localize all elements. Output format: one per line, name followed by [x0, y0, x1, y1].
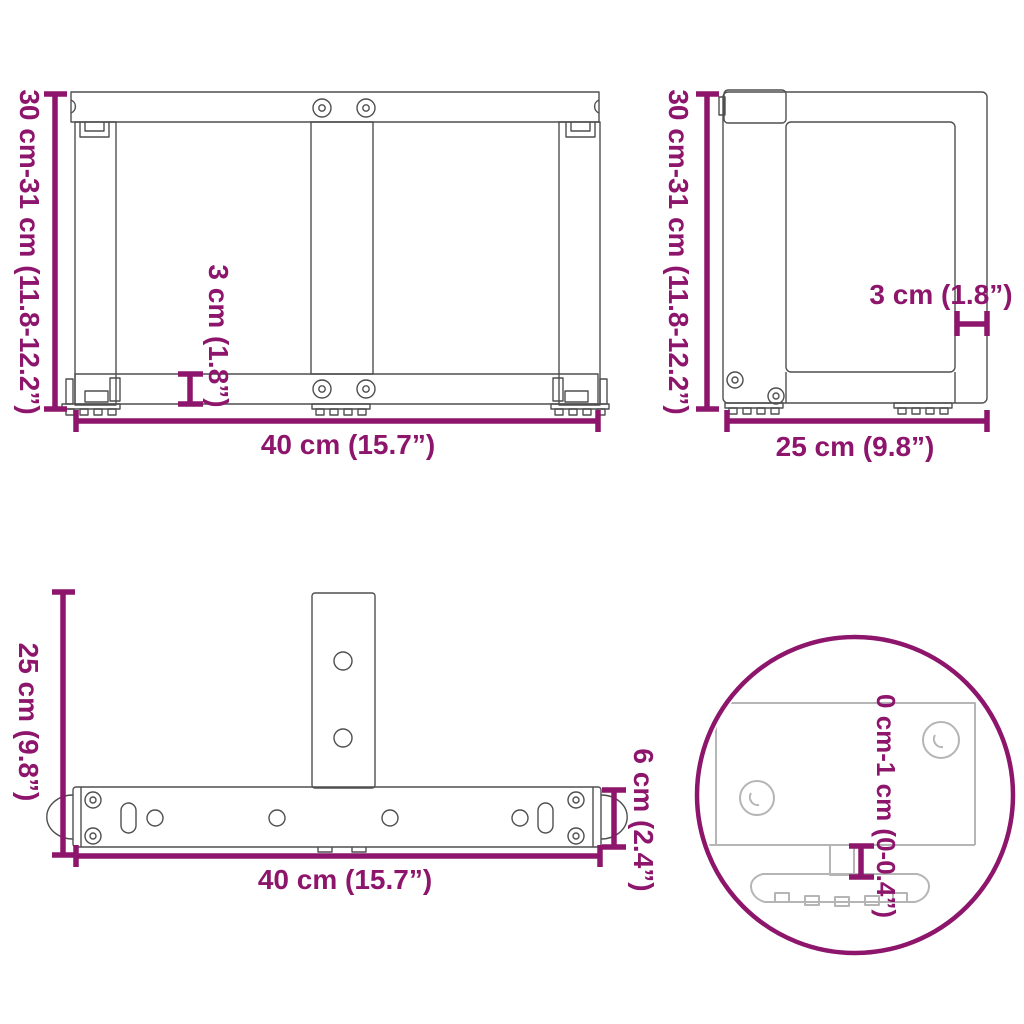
top-view-drawing [47, 593, 627, 852]
top-view-depth-label: 25 cm (9.8”) [14, 643, 42, 802]
foot-detail-adjustable-range-label: 0 cm-1 cm (0-0.4”) [873, 694, 899, 918]
dimension-lines [44, 94, 987, 877]
side-view-drawing [719, 90, 987, 414]
side-view-depth-label: 25 cm (9.8”) [776, 433, 935, 461]
top-view-width-label: 40 cm (15.7”) [258, 866, 432, 894]
front-view-bar-thickness-label: 3 cm (1.8”) [204, 264, 232, 407]
side-view-bar-thickness-label: 3 cm (1.8”) [869, 281, 1012, 309]
side-view-height-label: 30 cm-31 cm (11.8-12.2”) [664, 89, 692, 414]
front-view-width-label: 40 cm (15.7”) [261, 431, 435, 459]
foot-detail-drawing [700, 703, 975, 906]
detail-zoom-circle [697, 637, 1013, 953]
top-view-bar-width-label: 6 cm (2.4”) [629, 748, 657, 891]
product-dimension-diagram: 30 cm-31 cm (11.8-12.2”) 3 cm (1.8”) 40 … [0, 0, 1024, 1024]
front-view-height-label: 30 cm-31 cm (11.8-12.2”) [15, 89, 43, 414]
front-view-drawing [62, 92, 609, 415]
